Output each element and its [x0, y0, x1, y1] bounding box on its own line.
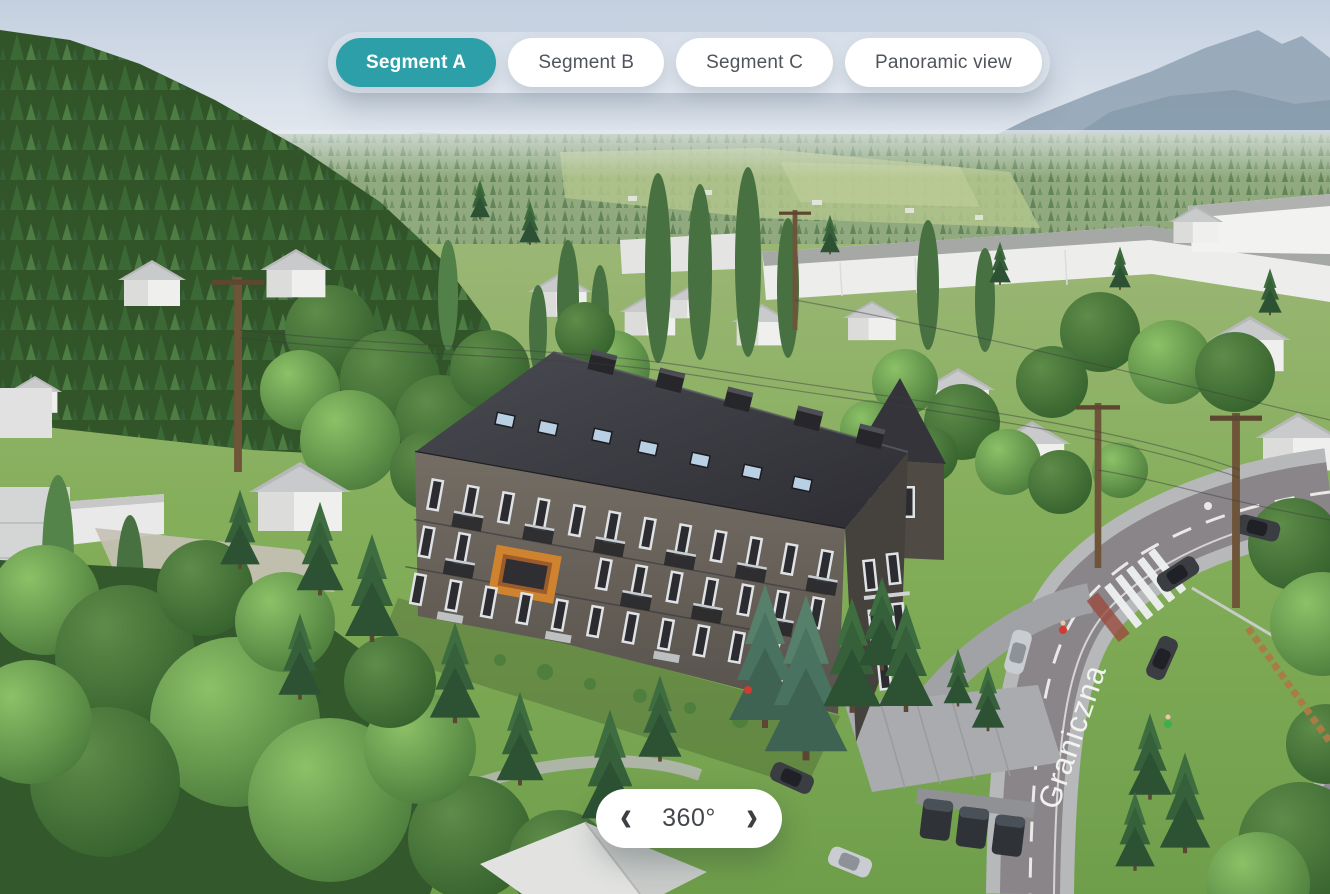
rotate-right-button[interactable]: ›: [742, 804, 762, 834]
scene-render: Graniczna: [0, 0, 1330, 894]
rotation-label: 360°: [662, 804, 716, 833]
tab-panoramic-view[interactable]: Panoramic view: [845, 38, 1042, 87]
chevron-right-icon: ›: [746, 794, 758, 837]
tab-segment-b[interactable]: Segment B: [508, 38, 664, 87]
rotate-left-button[interactable]: ‹: [616, 804, 636, 834]
tab-segment-c[interactable]: Segment C: [676, 38, 833, 87]
tab-segment-a[interactable]: Segment A: [336, 38, 496, 87]
chevron-left-icon: ‹: [620, 794, 632, 837]
viewer: Graniczna Segment A Segment B Segment C …: [0, 0, 1330, 894]
rotation-control: ‹ 360° ›: [596, 789, 782, 848]
segment-tabs: Segment A Segment B Segment C Panoramic …: [328, 32, 1050, 93]
